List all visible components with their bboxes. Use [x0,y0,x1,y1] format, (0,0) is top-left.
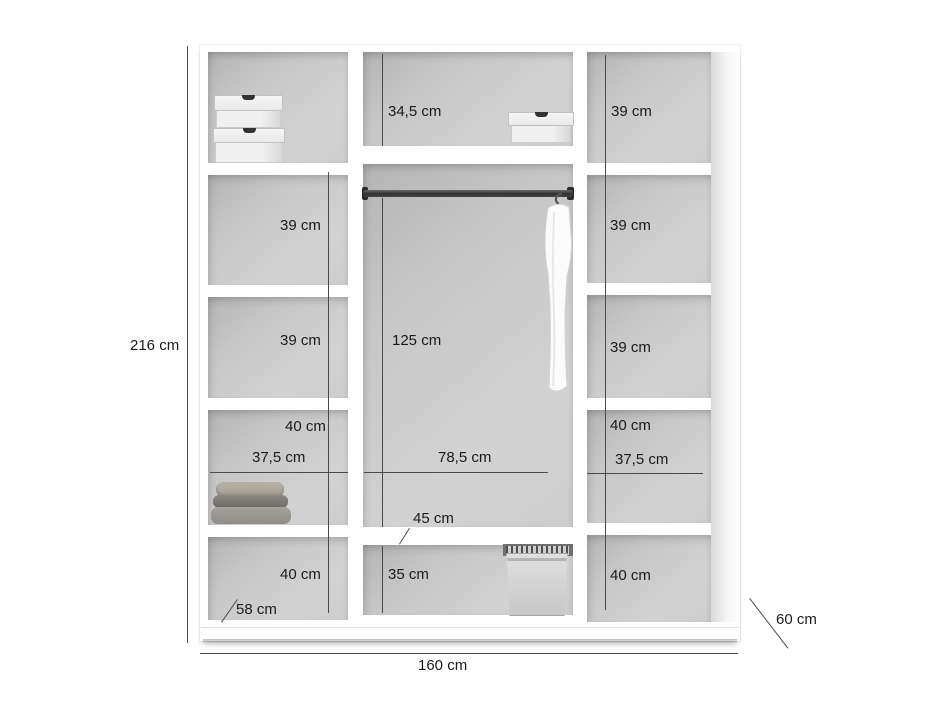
shoe-box-stack [213,94,285,163]
shoe-box-top-body [216,111,281,128]
dimension-label-width: 160 cm [418,658,467,673]
dimension-line-middle-bottom [382,546,383,613]
compartment-left-5 [208,537,348,620]
pull-out-basket [503,543,575,617]
hanging-shirt [540,192,576,397]
dimension-line-middle-hanging [382,198,383,527]
dimension-label-middle-bottom: 35 cm [388,567,429,582]
dimension-label-right-shelf-3: 39 cm [610,340,651,355]
dimension-label-left-shelf-3: 39 cm [280,333,321,348]
dimension-label-right-shelf-1: 39 cm [611,104,652,119]
box-handle-icon [242,95,255,100]
dimension-line-right-column [605,55,606,610]
dimension-label-left-width: 37,5 cm [252,450,305,465]
dimension-label-middle-width: 78,5 cm [438,450,491,465]
dimension-label-left-shelf-5: 40 cm [280,567,321,582]
compartment-left-2 [208,175,348,285]
dimension-label-right-width: 37,5 cm [615,452,668,467]
dimension-label-depth: 60 cm [776,612,817,627]
plinth-edge [201,627,739,628]
dimension-label-right-shelf-5: 40 cm [610,568,651,583]
dimension-label-height: 216 cm [130,338,179,353]
dimension-label-shelf-depth: 45 cm [413,511,454,526]
floor-shadow [203,639,737,643]
folded-clothes [211,482,293,525]
dimension-label-middle-hanging: 125 cm [392,333,441,348]
shoe-box-bottom-body [215,143,283,163]
dimension-label-right-shelf-4: 40 cm [610,418,651,433]
dimension-line-middle-top [382,54,383,146]
box-handle-icon [535,112,548,117]
dimension-line-height [187,46,188,643]
basket-rim [507,558,567,561]
hanger-hook-icon [556,194,562,204]
dimension-label-left-shelf-2: 39 cm [280,218,321,233]
dimension-label-middle-top: 34,5 cm [388,104,441,119]
wardrobe-diagram: 216 cm 160 cm 60 cm 58 cm 39 cm 39 cm 40… [0,0,943,707]
dimension-label-right-shelf-2: 39 cm [610,218,651,233]
dimension-line-middle-width [364,472,548,473]
dimension-line-left-width [210,472,348,473]
dimension-label-left-shelf-4: 40 cm [285,419,326,434]
dimension-label-bottom-depth: 58 cm [236,602,277,617]
dimension-line-left-column [328,172,329,613]
folded-garment [211,507,291,524]
right-side-panel [711,52,740,622]
box-handle-icon [243,128,256,133]
dimension-line-width [200,653,738,654]
basket-bin [505,553,569,616]
storage-box-body [511,126,571,143]
dimension-line-right-width [587,473,703,474]
compartment-left-3 [208,297,348,398]
storage-box [508,112,574,143]
